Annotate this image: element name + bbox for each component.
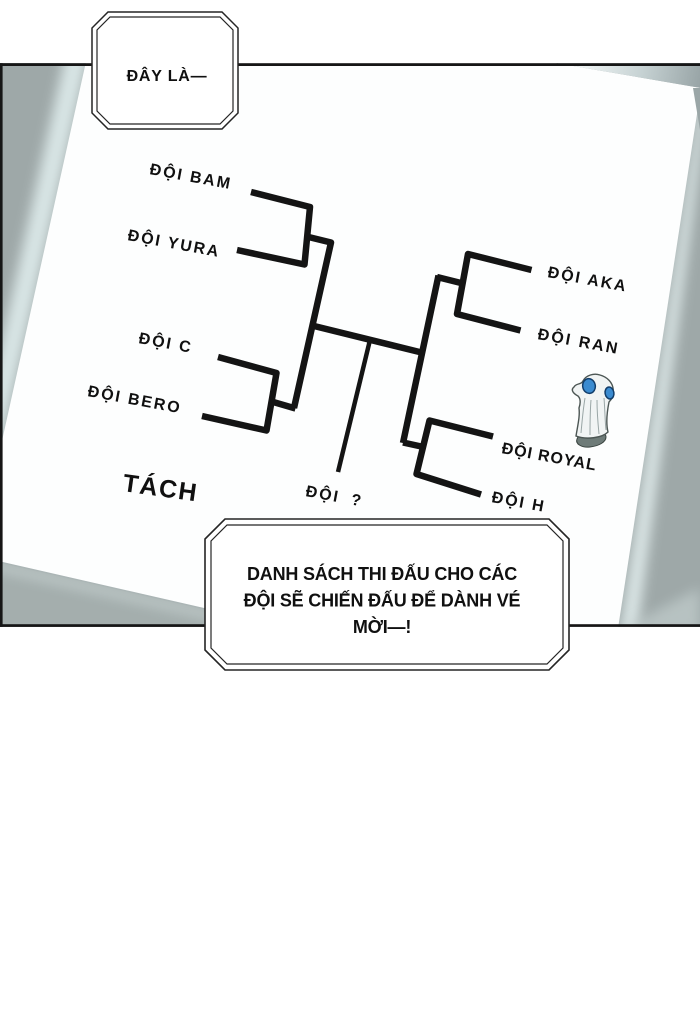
svg-text:ĐÂY LÀ—: ĐÂY LÀ— xyxy=(127,66,208,85)
svg-text:ĐỘI SẼ CHIẾN ĐẤU ĐỂ DÀNH VÉ: ĐỘI SẼ CHIẾN ĐẤU ĐỂ DÀNH VÉ xyxy=(244,590,521,611)
svg-text:MỜI—!: MỜI—! xyxy=(353,616,411,637)
svg-text:DANH SÁCH THI ĐẤU CHO CÁC: DANH SÁCH THI ĐẤU CHO CÁC xyxy=(247,563,517,584)
